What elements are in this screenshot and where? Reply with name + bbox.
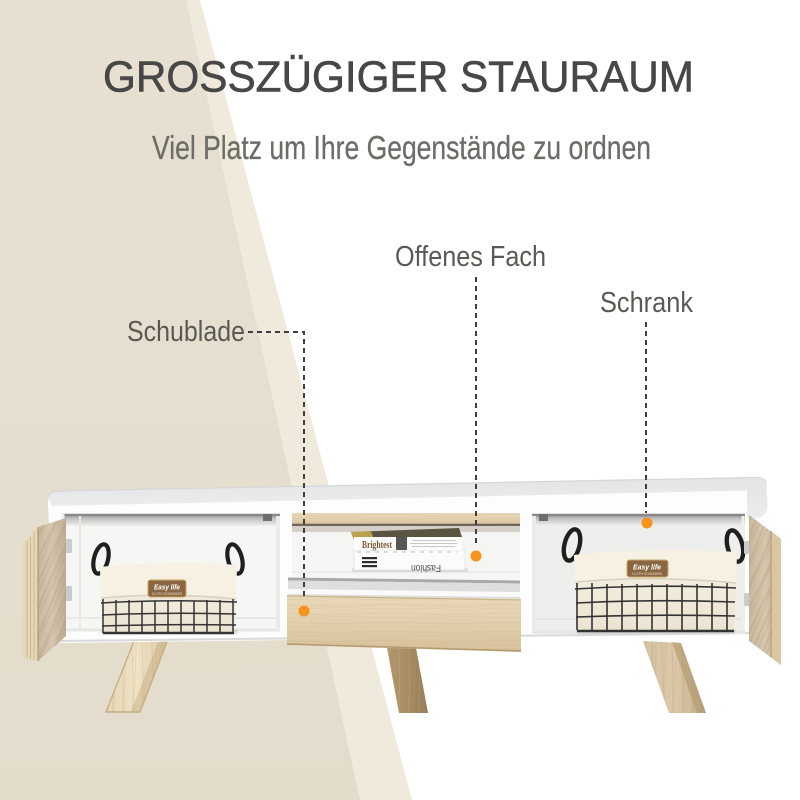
svg-text:Offenes Fach: Offenes Fach bbox=[395, 241, 546, 273]
svg-text:Easy life: Easy life bbox=[154, 585, 180, 592]
svg-text:Brightest: Brightest bbox=[362, 540, 392, 551]
svg-text:CLOTH GOODNESS: CLOTH GOODNESS bbox=[152, 592, 182, 596]
svg-text:Easy life: Easy life bbox=[633, 563, 661, 572]
svg-text:Schrank: Schrank bbox=[600, 287, 693, 319]
svg-text:Schublade: Schublade bbox=[127, 316, 245, 348]
svg-text:Viel Platz um Ihre Gegenstände: Viel Platz um Ihre Gegenstände zu ordnen bbox=[152, 129, 651, 166]
svg-text:Fashion: Fashion bbox=[411, 562, 441, 574]
svg-text:CLOTH GOODNESS: CLOTH GOODNESS bbox=[632, 572, 662, 576]
svg-text:GROSSZÜGIGER STAURAUM: GROSSZÜGIGER STAURAUM bbox=[103, 53, 694, 102]
